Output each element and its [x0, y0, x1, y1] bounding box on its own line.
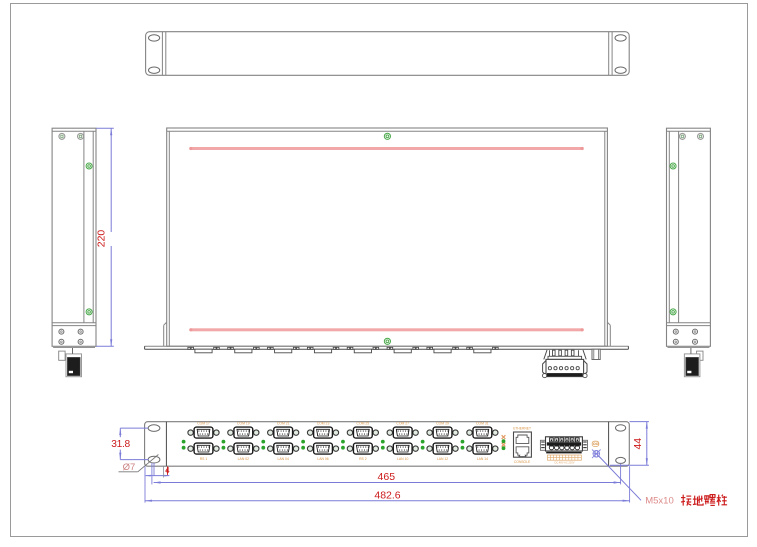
- svg-text:LAN 04: LAN 04: [278, 457, 289, 461]
- svg-text:COM 31: COM 31: [476, 422, 489, 426]
- svg-text:LAN 02: LAN 02: [238, 457, 249, 461]
- svg-text:LAN 06: LAN 06: [317, 457, 328, 461]
- svg-text:COM 25: COM 25: [357, 422, 370, 426]
- svg-text:COM 17: COM 17: [197, 422, 210, 426]
- svg-text:44: 44: [632, 438, 644, 450]
- svg-text:COM 27: COM 27: [396, 422, 409, 426]
- svg-text:COM 29: COM 29: [436, 422, 449, 426]
- svg-text:31.8: 31.8: [111, 439, 130, 450]
- svg-text:CONSOLE: CONSOLE: [514, 460, 531, 464]
- svg-text:LAN 12: LAN 12: [437, 457, 448, 461]
- svg-text:COM 23: COM 23: [317, 422, 330, 426]
- svg-text:LAN 10: LAN 10: [397, 457, 408, 461]
- svg-text:220: 220: [95, 230, 107, 248]
- svg-text:RS 1: RS 1: [200, 457, 208, 461]
- svg-text:LAN 14: LAN 14: [477, 457, 488, 461]
- svg-text:4: 4: [165, 466, 170, 475]
- svg-text:465: 465: [378, 471, 396, 483]
- svg-text:COM 19: COM 19: [237, 422, 250, 426]
- svg-text:DC:48V AC:220V: DC:48V AC:220V: [554, 460, 574, 464]
- svg-text:COM 21: COM 21: [277, 422, 290, 426]
- svg-text:ETHERNET: ETHERNET: [513, 427, 531, 431]
- svg-text:M5x10: M5x10: [645, 496, 674, 507]
- svg-text:RS 2: RS 2: [359, 457, 367, 461]
- svg-text:482.6: 482.6: [374, 489, 400, 501]
